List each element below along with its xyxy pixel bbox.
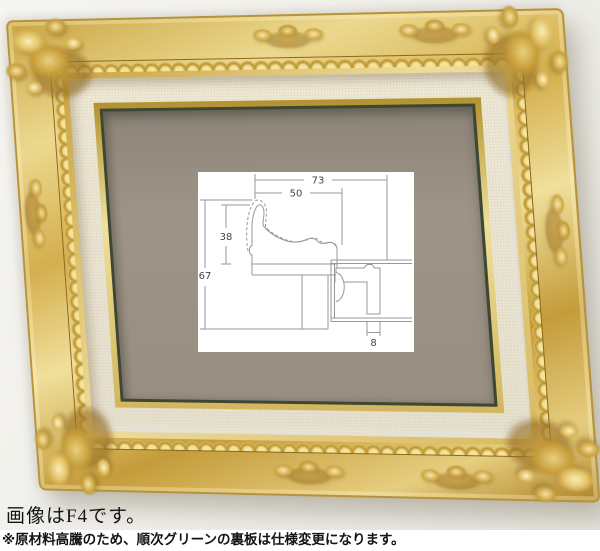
floral-ornament-bottom-2 xyxy=(412,461,502,493)
dim-line-8 xyxy=(367,322,380,336)
dim-label-67: 67 xyxy=(199,271,212,282)
corner-ornament-bottom-right xyxy=(473,384,600,513)
dim-label-8: 8 xyxy=(370,338,376,349)
floral-ornament-top-1 xyxy=(245,20,333,52)
dim-label-38: 38 xyxy=(220,232,233,243)
size-caption: 画像はF4です。 xyxy=(6,501,146,528)
base-and-stretcher xyxy=(210,264,337,329)
dim-label-50: 50 xyxy=(290,189,303,200)
floral-ornament-left xyxy=(19,171,53,255)
corner-ornament-bottom-left xyxy=(22,379,149,503)
frame-photo: 73 50 67 38 8 画像はF4です。 xyxy=(0,0,600,530)
floral-ornament-right xyxy=(539,187,577,275)
notice-text: ※原材料高騰のため、順次グリーンの裏板は仕様変更になります。 xyxy=(2,532,405,547)
dim-label-73: 73 xyxy=(312,176,325,187)
cross-section-diagram: 73 50 67 38 8 xyxy=(198,172,414,352)
floral-ornament-bottom-1 xyxy=(265,456,353,488)
cross-section-svg: 73 50 67 38 8 xyxy=(198,172,414,352)
corner-ornament-top-left xyxy=(0,8,122,131)
floral-ornament-top-2 xyxy=(390,15,480,47)
product-image: 73 50 67 38 8 画像はF4です。 ※原材料高騰のため、順次グリーンの… xyxy=(0,0,600,551)
notice-bar: ※原材料高騰のため、順次グリーンの裏板は仕様変更になります。 xyxy=(0,530,600,551)
molding-profile xyxy=(249,205,337,264)
